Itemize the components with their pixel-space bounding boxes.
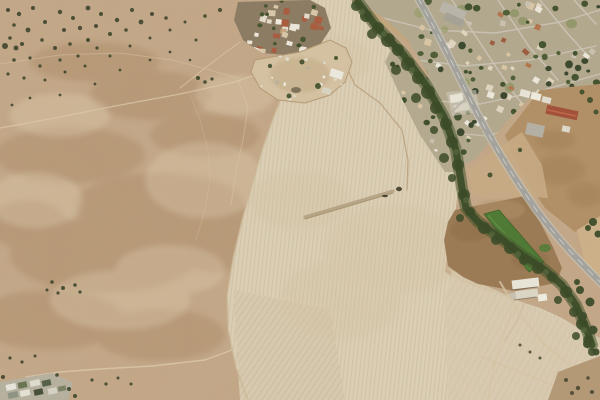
image-grain: [0, 0, 600, 400]
satellite-map-view[interactable]: [0, 0, 600, 400]
map-svg: [0, 0, 600, 400]
